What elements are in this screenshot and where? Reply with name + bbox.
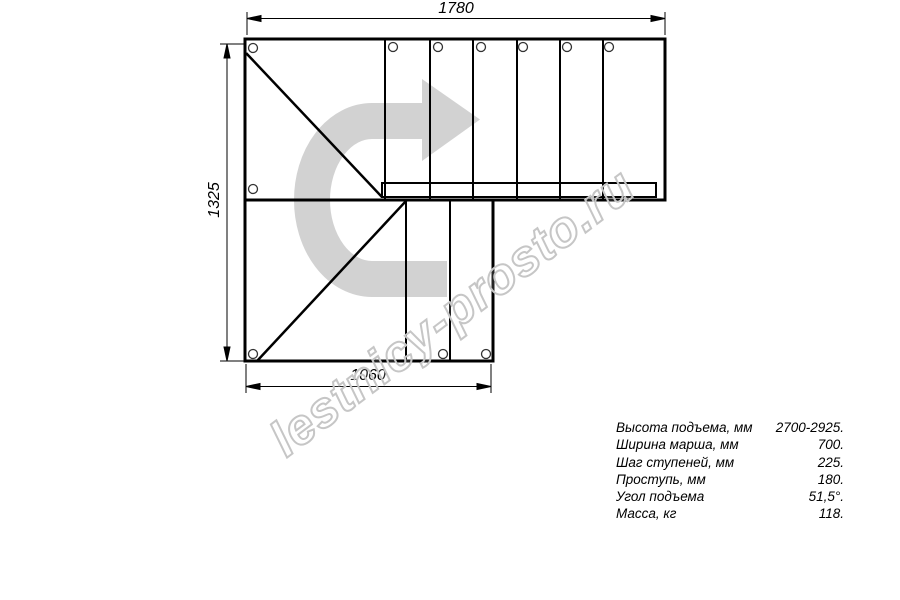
spec-row-flight-width: Ширина марша, мм 700.	[616, 436, 844, 453]
spec-row-tread: Проступь, мм 180.	[616, 471, 844, 488]
direction-arrow-icon	[312, 79, 480, 279]
bolt-hole-icon	[477, 43, 486, 52]
dim-arrow-icon	[477, 384, 491, 390]
dimension-label-top-width: 1780	[406, 0, 506, 18]
dim-arrow-icon	[224, 347, 230, 361]
spec-row-mass: Масса, кг 118.	[616, 505, 844, 522]
spec-label: Шаг ступеней, мм	[616, 454, 734, 471]
stringer-rail	[382, 183, 656, 197]
bolt-hole-icon	[389, 43, 398, 52]
spec-row-height: Высота подъема, мм 2700-2925.	[616, 419, 844, 436]
dim-arrow-icon	[246, 384, 260, 390]
spec-value: 118.	[819, 505, 844, 522]
bolt-hole-icon	[519, 43, 528, 52]
dim-arrow-icon	[224, 44, 230, 58]
spec-row-angle: Угол подъема 51,5°.	[616, 488, 844, 505]
spec-value: 225.	[818, 454, 844, 471]
spec-label: Проступь, мм	[616, 471, 706, 488]
spec-value: 2700-2925.	[776, 419, 844, 436]
dimension-label-bottom-width: 1060	[318, 367, 418, 385]
spec-label: Угол подъема	[616, 488, 704, 505]
drawing-canvas: 1780 1325 1060 lestnicy-prosto.ru Высота…	[0, 0, 900, 600]
spec-value: 51,5°.	[809, 488, 844, 505]
bolt-hole-icon	[249, 185, 258, 194]
spec-label: Масса, кг	[616, 505, 676, 522]
spec-label: Ширина марша, мм	[616, 436, 739, 453]
bolt-hole-icon	[439, 350, 448, 359]
dim-arrow-icon	[247, 16, 261, 22]
bolt-hole-icon	[605, 43, 614, 52]
bolt-hole-icon	[249, 350, 258, 359]
spec-row-step-pitch: Шаг ступеней, мм 225.	[616, 454, 844, 471]
spec-value: 180.	[818, 471, 844, 488]
spec-value: 700.	[818, 436, 844, 453]
bolt-hole-icon	[249, 44, 258, 53]
bolt-hole-icon	[434, 43, 443, 52]
dimension-label-left-height: 1325	[206, 150, 224, 250]
dim-arrow-icon	[651, 16, 665, 22]
bolt-hole-icon	[482, 350, 491, 359]
spec-table: Высота подъема, мм 2700-2925. Ширина мар…	[616, 419, 844, 523]
bolt-hole-icon	[563, 43, 572, 52]
spec-label: Высота подъема, мм	[616, 419, 752, 436]
